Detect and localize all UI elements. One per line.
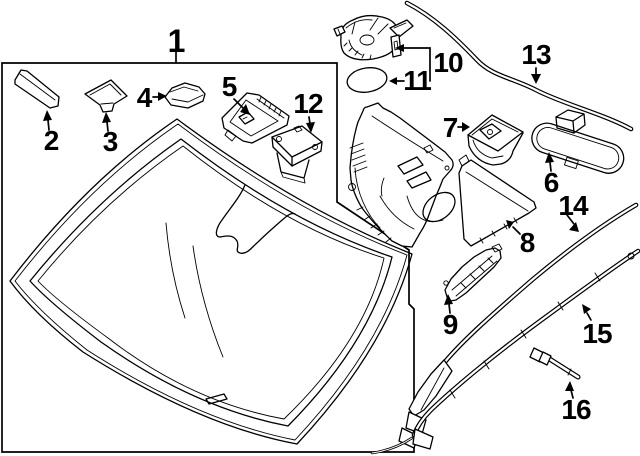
callout-label-13: 13 — [521, 39, 551, 70]
mirror-mount-patch — [216, 185, 295, 253]
diagram-canvas: 1 2 3 4 5 6 7 8 9 10 11 12 13 14 15 16 — [0, 0, 640, 456]
callout-label-2: 2 — [44, 125, 59, 156]
callout-label-5: 5 — [222, 71, 237, 102]
callout-label-10: 10 — [433, 47, 463, 78]
callout-label-8: 8 — [520, 227, 535, 258]
callout-label-9: 9 — [443, 309, 458, 340]
part-2-spacer-drawing — [15, 70, 59, 108]
callout-label-7: 7 — [443, 112, 458, 143]
part-12-module-drawing — [272, 126, 322, 183]
callout-label-14: 14 — [558, 190, 589, 221]
callout-label-12: 12 — [293, 88, 323, 119]
callout-label-11: 11 — [403, 65, 431, 96]
callout-label-4: 4 — [137, 82, 153, 113]
part-11-gasket-drawing — [345, 65, 388, 95]
part-7-sensor-cover-drawing — [468, 115, 523, 165]
part-4-pad-drawing — [165, 83, 205, 108]
windshield-parts-diagram: 1 2 3 4 5 6 7 8 9 10 11 12 13 14 15 16 — [0, 0, 640, 456]
part-10-rain-sensor-drawing — [334, 16, 413, 60]
part-9-bracket-drawing — [444, 244, 502, 301]
callout-label-6: 6 — [544, 167, 559, 198]
glass-reflection-lines — [166, 223, 185, 318]
callout-label-15: 15 — [582, 318, 612, 349]
callout-label-1: 1 — [168, 23, 185, 59]
callout-label-3: 3 — [103, 126, 118, 157]
part-3-pad-drawing — [85, 80, 127, 112]
part-1-assembly-box — [2, 63, 414, 452]
part-16-stud-bolt-drawing — [530, 348, 578, 377]
callout-label-16: 16 — [561, 394, 591, 425]
